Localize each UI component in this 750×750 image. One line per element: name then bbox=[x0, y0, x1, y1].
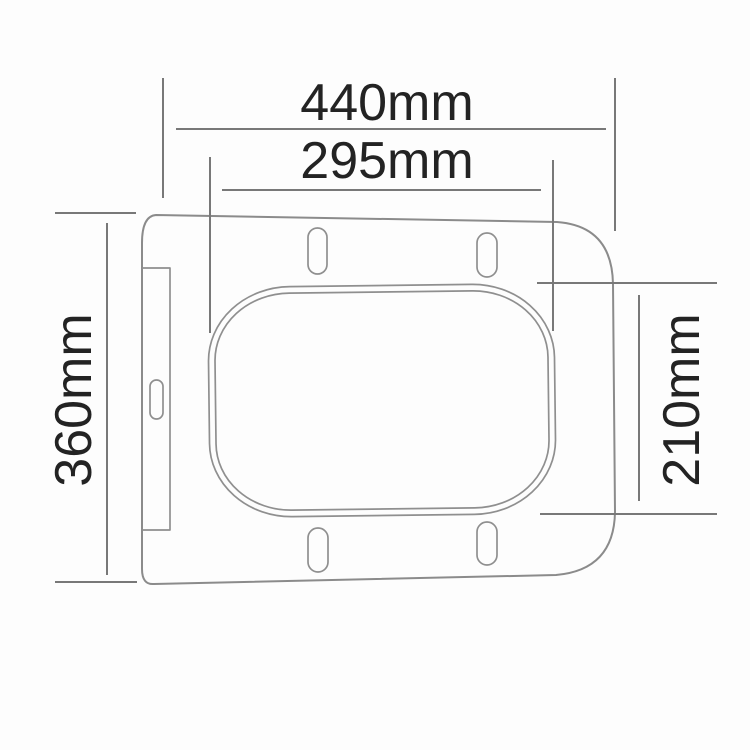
seat-opening bbox=[208, 283, 557, 517]
overall-depth-label: 360mm bbox=[45, 313, 103, 486]
seat-outline bbox=[142, 215, 615, 584]
dimension-opening-depth: 210mm bbox=[537, 283, 717, 514]
opening-width-label: 295mm bbox=[300, 132, 473, 190]
seat-opening-outer-line bbox=[208, 283, 557, 517]
dimension-opening-width: 295mm bbox=[210, 132, 553, 333]
hinge-slot-top-left bbox=[308, 228, 327, 274]
overall-width-label: 440mm bbox=[300, 74, 473, 132]
hinge-slot-bottom-right bbox=[477, 522, 497, 565]
hinge-plate-slot bbox=[150, 380, 163, 419]
seat-drawing bbox=[142, 215, 615, 584]
hinge-plate-outline bbox=[143, 268, 170, 530]
dimension-overall-depth: 360mm bbox=[45, 213, 137, 582]
seat-dimension-diagram: 440mm 295mm 360mm 210mm bbox=[0, 0, 750, 750]
diagram-canvas: 440mm 295mm 360mm 210mm bbox=[0, 0, 750, 750]
opening-depth-label: 210mm bbox=[653, 313, 711, 486]
hinge-slot-top-right bbox=[477, 233, 497, 277]
hinge-slot-bottom-left bbox=[308, 528, 328, 572]
seat-opening-inner-line bbox=[214, 290, 550, 511]
hinge-plate bbox=[143, 268, 170, 530]
